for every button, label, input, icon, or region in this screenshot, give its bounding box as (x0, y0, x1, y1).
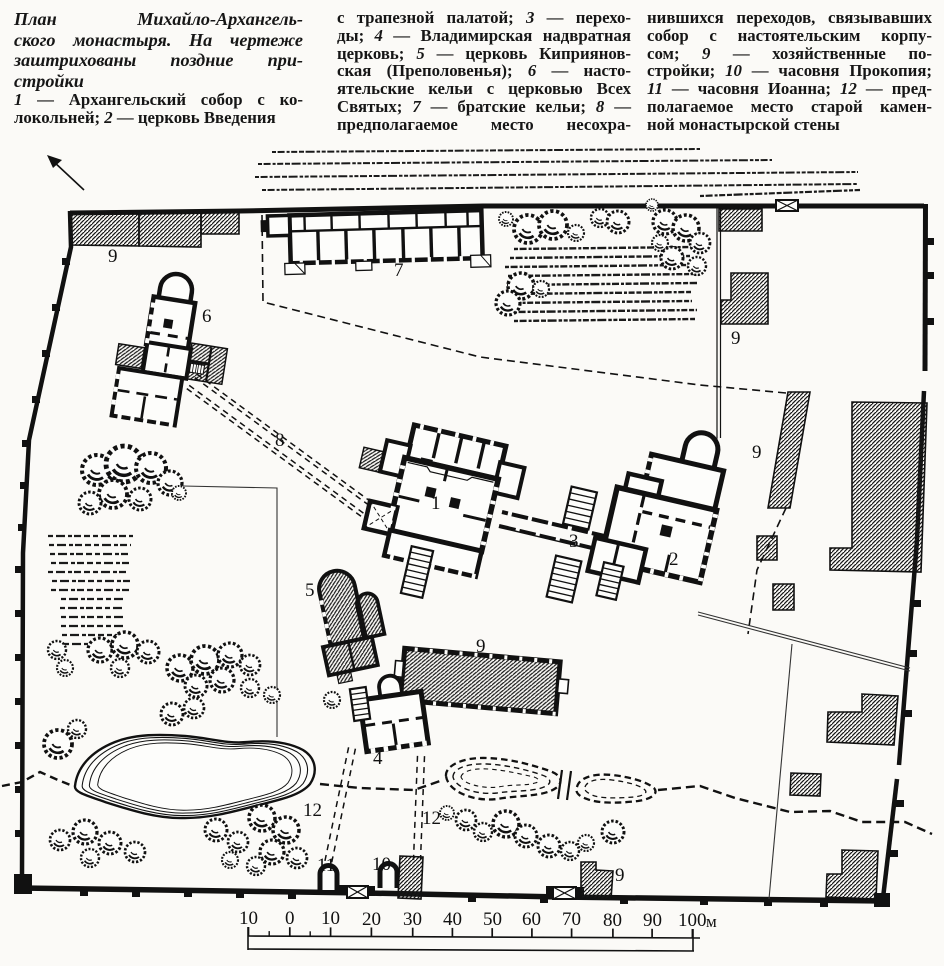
svg-text:3: 3 (569, 531, 579, 552)
svg-text:1: 1 (431, 493, 441, 514)
svg-text:9: 9 (476, 636, 486, 657)
svg-text:10: 10 (321, 908, 340, 929)
svg-text:2: 2 (669, 549, 679, 570)
svg-text:50: 50 (483, 909, 502, 930)
svg-text:7: 7 (394, 260, 404, 281)
svg-text:11: 11 (317, 855, 335, 876)
svg-text:40: 40 (443, 909, 462, 930)
svg-text:10: 10 (239, 908, 258, 929)
svg-text:10: 10 (372, 854, 391, 875)
svg-text:12: 12 (303, 800, 322, 821)
svg-text:8: 8 (275, 430, 285, 451)
svg-text:20: 20 (362, 909, 381, 930)
svg-text:9: 9 (615, 865, 625, 886)
svg-text:60: 60 (522, 909, 541, 930)
svg-text:м: м (706, 912, 717, 931)
svg-text:6: 6 (202, 306, 212, 327)
svg-text:100: 100 (678, 910, 707, 931)
svg-text:80: 80 (603, 910, 622, 931)
svg-text:5: 5 (305, 580, 315, 601)
svg-text:90: 90 (643, 910, 662, 931)
svg-text:9: 9 (731, 328, 741, 349)
svg-text:0: 0 (285, 908, 295, 929)
svg-text:30: 30 (403, 909, 422, 930)
svg-text:9: 9 (108, 246, 118, 267)
svg-text:70: 70 (562, 909, 581, 930)
svg-text:9: 9 (752, 442, 762, 463)
svg-text:4: 4 (373, 748, 383, 769)
svg-text:12: 12 (422, 808, 441, 829)
